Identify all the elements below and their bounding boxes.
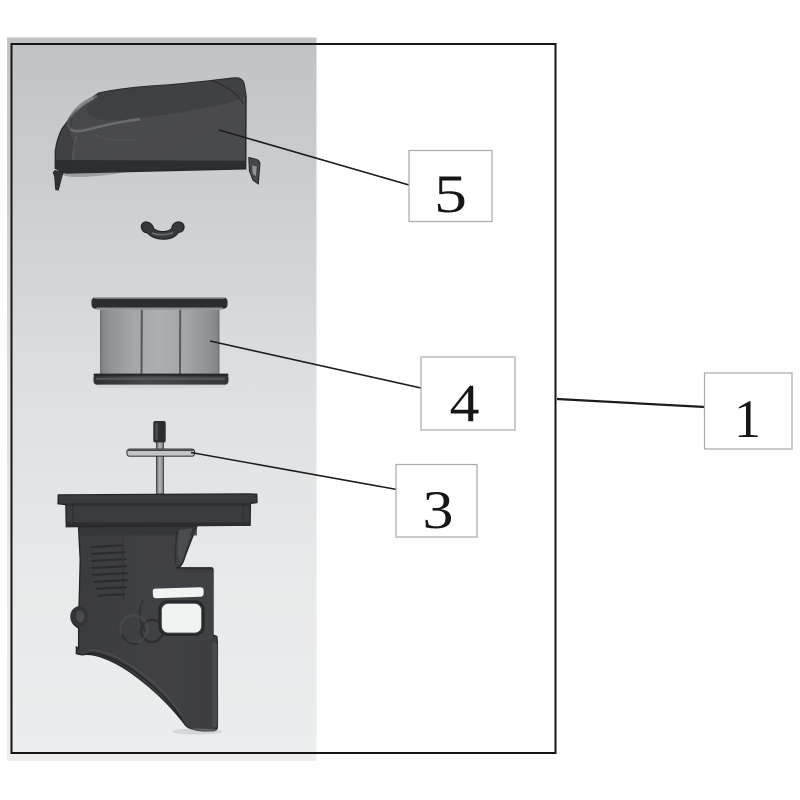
svg-text:3: 3 <box>423 480 454 540</box>
svg-text:5: 5 <box>434 164 467 224</box>
svg-text:1: 1 <box>734 389 761 449</box>
svg-text:4: 4 <box>450 374 480 434</box>
